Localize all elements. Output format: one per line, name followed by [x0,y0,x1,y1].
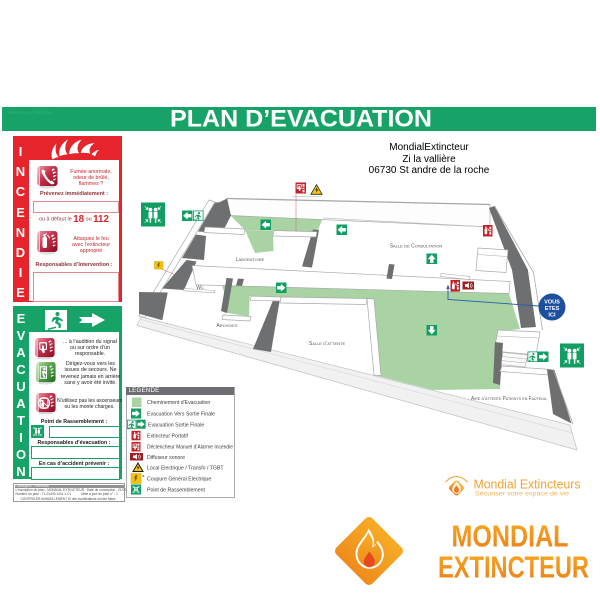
svg-text:Wc: Wc [196,285,204,291]
svg-text:Aire d'attente Patients en Fau: Aire d'attente Patients en Fauteuil [471,396,548,402]
svg-text:Sécuriser votre espace de vie: Sécuriser votre espace de vie [475,491,569,498]
svg-text:Salle d'attente: Salle d'attente [309,341,346,347]
svg-text:PLAN D’EVACUATION: PLAN D’EVACUATION [170,107,432,131]
svg-text:ETES: ETES [545,306,560,312]
svg-text:Mondial Extincteurs: Mondial Extincteurs [474,477,581,492]
svg-text:Laboratoire: Laboratoire [236,257,265,263]
svg-text:ICI: ICI [548,313,556,319]
svg-text:EXTINCTEUR: EXTINCTEUR [438,550,589,585]
svg-text:Salle de Consultation: Salle de Consultation [390,244,443,250]
svg-text:VOUS: VOUS [544,300,560,306]
svg-text:Coupure Général Electrique: Coupure Général Electrique [147,477,211,483]
svg-text:MONDIAL: MONDIAL [452,519,569,554]
svg-text:Archives: Archives [216,323,237,329]
svg-text:Point de Rassemblement: Point de Rassemblement [147,488,206,494]
